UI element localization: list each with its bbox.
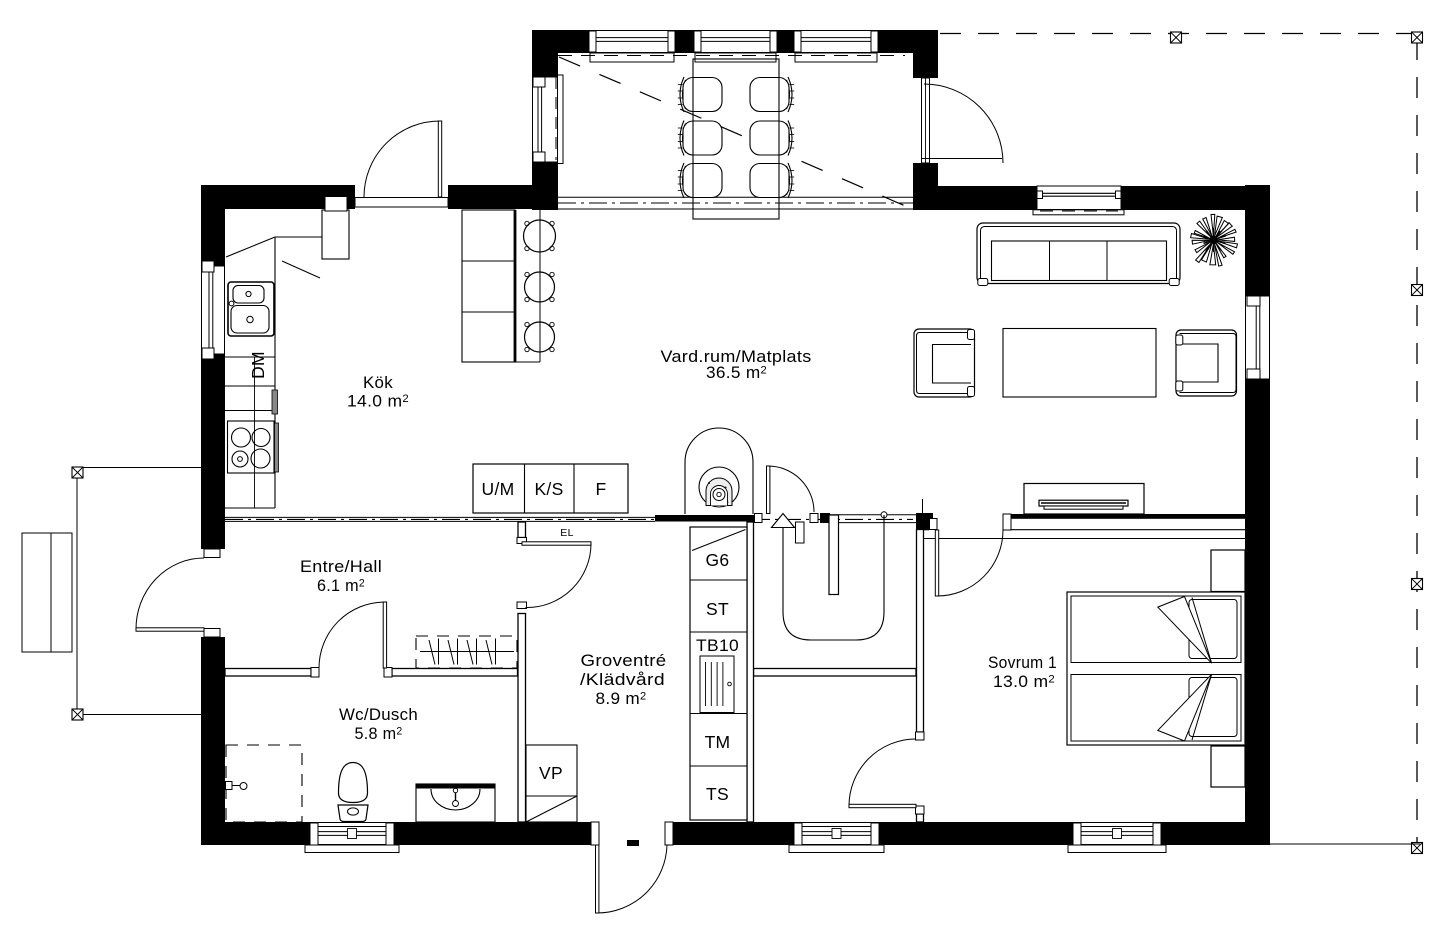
svg-text:8.9 m2: 8.9 m2 <box>596 689 647 708</box>
svg-text:F: F <box>596 479 607 499</box>
svg-text:TS: TS <box>706 784 729 804</box>
svg-text:EL: EL <box>560 527 573 539</box>
svg-text:TM: TM <box>705 732 731 752</box>
svg-text:Entre/Hall: Entre/Hall <box>300 557 382 576</box>
svg-text:G6: G6 <box>706 550 730 570</box>
svg-text:Wc/Dusch: Wc/Dusch <box>339 705 418 724</box>
svg-text:13.0 m2: 13.0 m2 <box>993 672 1055 691</box>
svg-text:TB10: TB10 <box>696 637 739 655</box>
svg-text:U/M: U/M <box>482 479 515 499</box>
svg-text:ST: ST <box>706 599 729 619</box>
svg-text:5.8 m2: 5.8 m2 <box>355 724 403 743</box>
svg-text:6.1 m2: 6.1 m2 <box>317 576 365 595</box>
svg-text:36.5 m2: 36.5 m2 <box>706 363 767 382</box>
svg-text:Kök: Kök <box>363 373 393 392</box>
svg-text:K/S: K/S <box>534 479 563 499</box>
svg-text:/Klädvård: /Klädvård <box>580 670 665 689</box>
svg-text:VP: VP <box>539 763 563 783</box>
svg-text:Sovrum 1: Sovrum 1 <box>988 653 1057 672</box>
svg-text:Groventré: Groventré <box>581 651 667 670</box>
svg-text:14.0 m2: 14.0 m2 <box>347 392 409 411</box>
svg-text:DM: DM <box>248 351 268 379</box>
